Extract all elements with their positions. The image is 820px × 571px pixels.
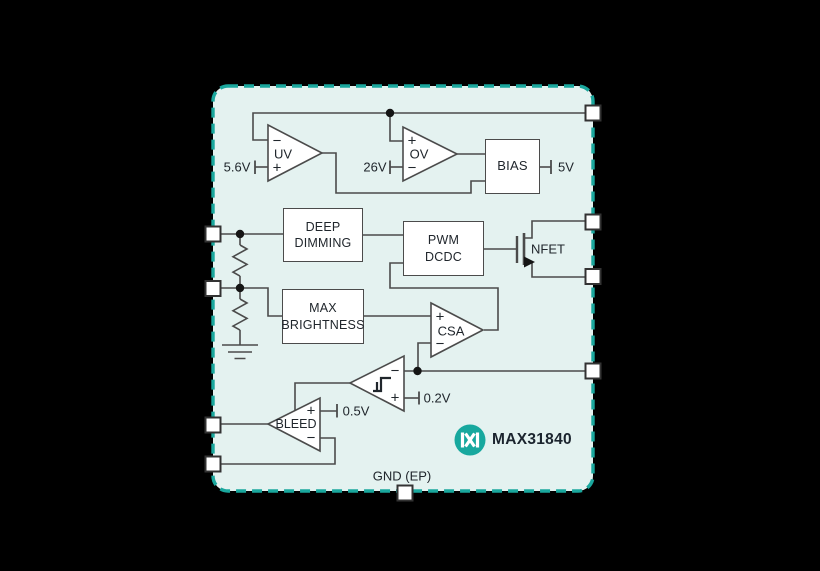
pin-right-4 [586, 364, 601, 379]
pin-left-3 [206, 418, 221, 433]
bleed-ref-label: 0.5V [343, 404, 370, 419]
pin-left-1 [206, 227, 221, 242]
ov-minus-sign: − [408, 160, 417, 177]
csa-plus-sign: + [436, 309, 445, 326]
pin-right-3 [586, 269, 601, 284]
junction-dot [236, 284, 244, 292]
pin-right-1 [586, 106, 601, 121]
deep-dimming-label-line1: DEEP [306, 219, 341, 235]
bleed-minus-sign: − [307, 430, 316, 447]
pwm-dcdc-label-line1: PWM [428, 232, 459, 248]
csa-minus-sign: − [436, 336, 445, 353]
comparator-plus-sign: + [391, 390, 400, 407]
pwm-dcdc-block: PWM DCDC [403, 221, 484, 276]
uv-plus-sign: + [273, 160, 282, 177]
deep-dimming-block: DEEP DIMMING [283, 208, 363, 262]
bias-block: BIAS [485, 139, 540, 194]
pin-left-2 [206, 281, 221, 296]
pin-right-2 [586, 215, 601, 230]
ground-pin-label: GND (EP) [373, 469, 432, 484]
pwm-dcdc-label-line2: DCDC [425, 249, 462, 265]
max-brightness-label-line2: BRIGHTNESS [281, 317, 364, 333]
ov-ref-label: 26V [363, 160, 386, 175]
pin-left-4 [206, 457, 221, 472]
pin-bottom-gnd [398, 486, 413, 501]
maxim-logo-icon [455, 425, 486, 456]
deep-dimming-label-line2: DIMMING [295, 235, 352, 251]
part-number: MAX31840 [492, 431, 572, 449]
uv-minus-sign: − [273, 133, 282, 150]
junction-dot [386, 109, 394, 117]
ov-plus-sign: + [408, 133, 417, 150]
max-brightness-label-line1: MAX [309, 300, 337, 316]
bleed-plus-sign: + [307, 403, 316, 420]
diagram-artwork [0, 0, 820, 571]
block-diagram-canvas: DEEP DIMMING PWM DCDC MAX BRIGHTNESS BIA… [0, 0, 820, 571]
bias-output-label: 5V [558, 160, 574, 175]
junction-dot [413, 367, 421, 375]
comparator-ref-label: 0.2V [424, 391, 451, 406]
bias-label: BIAS [497, 158, 527, 175]
comparator-minus-sign: − [391, 363, 400, 380]
junction-dot [236, 230, 244, 238]
uv-ref-label: 5.6V [224, 160, 251, 175]
max-brightness-block: MAX BRIGHTNESS [282, 289, 364, 344]
nfet-label: NFET [531, 242, 565, 257]
